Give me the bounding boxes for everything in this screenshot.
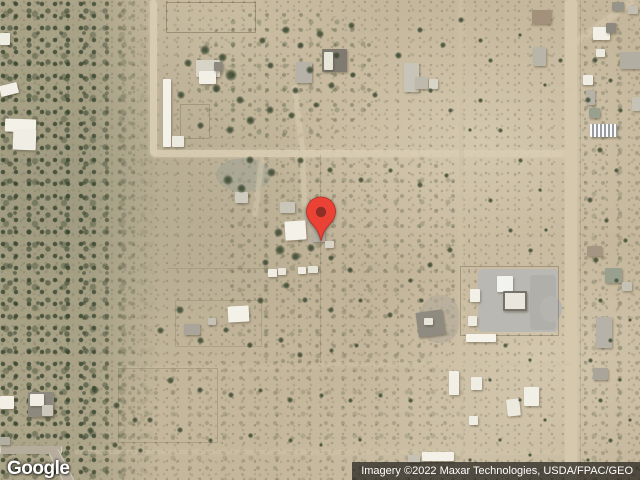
tree	[132, 417, 138, 423]
tree	[488, 198, 493, 203]
tree	[427, 262, 433, 268]
tree	[302, 297, 308, 303]
building	[612, 2, 624, 11]
building	[533, 47, 546, 66]
tree	[197, 337, 204, 344]
tree	[593, 257, 599, 263]
tree	[587, 197, 593, 203]
tree	[147, 417, 153, 423]
tree	[259, 37, 266, 44]
tree	[558, 58, 563, 63]
tree	[225, 69, 237, 81]
tree	[258, 388, 263, 393]
tree	[212, 84, 221, 93]
tree	[417, 27, 423, 33]
tree	[288, 112, 295, 119]
building	[199, 71, 216, 84]
dirt-road	[150, 0, 157, 155]
building	[0, 396, 14, 409]
tree	[378, 393, 383, 398]
tree	[248, 433, 253, 438]
building	[422, 452, 454, 461]
tree	[628, 318, 632, 322]
building	[424, 318, 433, 325]
dirt-road	[460, 88, 574, 91]
building	[620, 52, 640, 69]
building	[0, 33, 10, 45]
tree	[354, 343, 359, 348]
tree	[297, 42, 304, 49]
building	[497, 276, 513, 292]
tree	[328, 82, 335, 89]
building	[587, 246, 602, 256]
tree	[113, 402, 120, 409]
tree	[237, 184, 246, 193]
tree	[348, 22, 355, 29]
tree	[498, 128, 503, 133]
tree	[348, 398, 353, 403]
tree	[247, 342, 253, 348]
building	[298, 267, 306, 274]
attribution-bar: Imagery ©2022 Maxar Technologies, USDA/F…	[352, 462, 640, 480]
tree	[297, 157, 304, 164]
tree	[628, 418, 632, 422]
tree	[604, 218, 609, 223]
tree	[598, 298, 603, 303]
tree	[395, 52, 402, 59]
tree	[518, 33, 522, 37]
tree	[528, 453, 532, 457]
tree	[608, 438, 613, 443]
tree	[468, 128, 472, 132]
tree	[358, 438, 362, 442]
tree	[91, 386, 99, 394]
tree	[592, 57, 598, 63]
tree	[257, 297, 264, 304]
building	[325, 241, 334, 248]
tree	[488, 378, 492, 382]
tree	[528, 248, 533, 253]
tree	[347, 267, 353, 273]
tree	[197, 387, 203, 393]
building	[214, 62, 223, 71]
building	[415, 77, 428, 89]
tree	[228, 392, 234, 398]
fence-line	[580, 0, 581, 480]
tree	[358, 177, 364, 183]
building	[208, 318, 216, 325]
tree	[297, 352, 303, 358]
tree	[597, 147, 603, 153]
tree	[200, 45, 210, 55]
building	[278, 268, 286, 275]
tree	[313, 102, 319, 108]
tree	[408, 278, 413, 283]
tree	[274, 228, 283, 237]
dirt-road	[565, 0, 577, 480]
fence-line	[320, 155, 321, 363]
tree	[283, 282, 290, 289]
tree	[614, 278, 619, 283]
tree	[350, 72, 356, 78]
satellite-map[interactable]: Google Imagery ©2022 Maxar Technologies,…	[0, 0, 640, 480]
building	[42, 405, 53, 416]
pin-body	[307, 197, 336, 241]
tree	[184, 59, 192, 67]
tree	[292, 87, 299, 94]
tree	[447, 247, 453, 253]
tree	[307, 244, 315, 252]
tree	[372, 92, 378, 98]
tree	[419, 298, 424, 303]
tree	[508, 228, 513, 233]
tree	[585, 97, 591, 103]
tree	[112, 442, 118, 448]
tree	[208, 438, 213, 443]
building	[596, 49, 605, 57]
building	[628, 6, 638, 14]
tree	[428, 88, 433, 93]
building	[308, 266, 318, 273]
tree	[538, 188, 542, 192]
tree	[87, 427, 94, 434]
tree	[177, 427, 183, 433]
tree	[328, 307, 334, 313]
tree	[623, 238, 628, 243]
tree	[267, 62, 274, 69]
tree	[518, 158, 523, 163]
building	[268, 269, 277, 277]
tree	[387, 312, 393, 318]
tree	[266, 106, 274, 114]
dirt-road	[75, 450, 570, 454]
tree	[417, 182, 423, 188]
tree	[218, 53, 227, 62]
tree	[458, 17, 464, 23]
tree	[588, 358, 593, 363]
building	[469, 416, 478, 425]
tree	[267, 168, 276, 177]
tree	[275, 245, 285, 255]
building	[532, 10, 551, 24]
attribution-text: Imagery ©2022 Maxar Technologies, USDA/F…	[361, 465, 633, 477]
dirt-road	[320, 362, 572, 366]
google-logo[interactable]: Google	[7, 458, 69, 480]
building	[324, 52, 333, 70]
building	[622, 282, 632, 291]
tree	[287, 397, 293, 403]
fence-line	[166, 2, 256, 33]
tree	[598, 398, 603, 403]
building	[466, 334, 496, 342]
tree	[518, 398, 522, 402]
tree	[498, 438, 502, 442]
building	[284, 220, 306, 240]
tree	[618, 378, 622, 382]
tree	[177, 91, 185, 99]
building	[593, 368, 608, 380]
tree	[282, 26, 290, 34]
building	[471, 377, 482, 390]
tree	[388, 168, 393, 173]
building	[583, 75, 593, 85]
tree	[262, 259, 269, 266]
tree	[543, 418, 547, 422]
tree	[329, 348, 334, 353]
building	[590, 124, 617, 137]
building	[172, 136, 184, 147]
tree	[478, 98, 483, 103]
tree	[226, 126, 234, 134]
tree	[358, 298, 363, 303]
dirt-road	[459, 0, 464, 480]
tree	[319, 443, 323, 447]
tree	[319, 393, 324, 398]
building	[228, 305, 250, 322]
tree	[316, 30, 324, 38]
tree	[488, 58, 493, 63]
tree	[327, 167, 333, 173]
tree	[167, 377, 174, 384]
building	[596, 317, 612, 348]
tree	[543, 83, 547, 87]
tree	[444, 173, 449, 178]
tree	[278, 337, 284, 343]
building	[632, 97, 640, 111]
fence-line	[180, 104, 210, 139]
tree	[440, 42, 446, 48]
tree	[328, 255, 334, 261]
tree	[197, 122, 204, 129]
building	[470, 289, 480, 302]
tree	[614, 168, 619, 173]
tree	[528, 358, 532, 362]
tree	[448, 108, 453, 113]
pin-inner-dot	[316, 207, 326, 217]
tree	[291, 252, 300, 261]
building	[0, 437, 10, 445]
tree	[608, 338, 613, 343]
fence-line	[167, 268, 267, 269]
building	[606, 23, 616, 33]
building	[468, 316, 477, 326]
location-pin-icon	[305, 196, 337, 242]
building	[524, 387, 539, 406]
tree	[408, 398, 413, 403]
building	[13, 130, 37, 151]
building	[503, 291, 527, 311]
tree	[157, 327, 164, 334]
dirt-road	[152, 150, 574, 157]
tree	[288, 438, 293, 443]
building	[280, 202, 295, 213]
building	[184, 324, 200, 335]
tree	[176, 306, 184, 314]
building	[589, 108, 600, 118]
tree	[246, 156, 254, 164]
tree	[544, 228, 548, 232]
tree	[618, 108, 623, 113]
building	[163, 79, 171, 147]
building	[0, 82, 19, 97]
building	[235, 192, 248, 203]
tree	[138, 448, 143, 453]
tree	[478, 38, 483, 43]
tree	[608, 78, 613, 83]
building	[449, 371, 459, 395]
tree	[503, 343, 508, 348]
tree	[306, 66, 314, 74]
tree	[236, 96, 244, 104]
tree	[223, 327, 229, 333]
tree	[246, 116, 255, 125]
tree	[333, 52, 340, 59]
tree	[223, 175, 233, 185]
